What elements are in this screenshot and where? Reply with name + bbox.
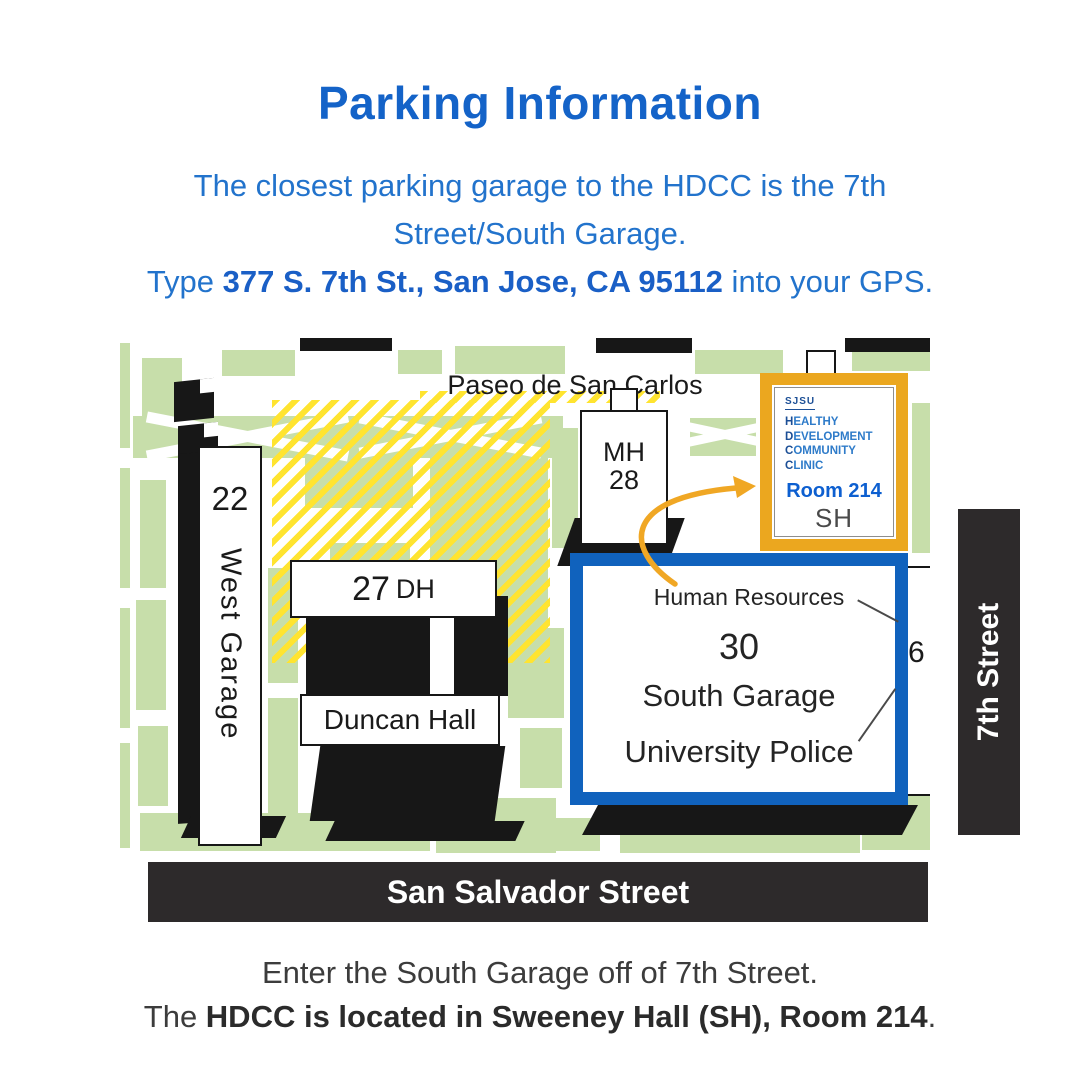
street-banner-san-salvador: San Salvador Street — [148, 862, 928, 922]
footer-line-2: The HDCC is located in Sweeney Hall (SH)… — [0, 995, 1080, 1039]
parking-infographic: Parking Information The closest parking … — [0, 0, 1080, 1080]
south-garage-shadow — [582, 805, 918, 835]
footer-text: Enter the South Garage off of 7th Street… — [0, 951, 1080, 1039]
intro-line-3: Type 377 S. 7th St., San Jose, CA 95112 … — [0, 258, 1080, 306]
building-duncan-hall: Duncan Hall — [300, 694, 500, 746]
dh-code: DH — [396, 574, 435, 605]
sjsu-logo: SJSU — [785, 396, 815, 410]
west-garage-number: 22 — [200, 480, 260, 518]
gps-address: 377 S. 7th St., San Jose, CA 95112 — [223, 264, 723, 299]
building-west-garage: 22 West Garage — [198, 446, 262, 846]
label-south-garage: South Garage — [583, 678, 895, 714]
footer-line-1: Enter the South Garage off of 7th Street… — [0, 951, 1080, 995]
street-banner-san-salvador-label: San Salvador Street — [387, 874, 689, 911]
page-title: Parking Information — [0, 76, 1080, 130]
building-fragment — [845, 338, 930, 352]
hdcc-line: HEALTHY — [785, 415, 893, 430]
label-university-police: University Police — [583, 734, 895, 770]
building-27-dh: 27 DH — [290, 560, 497, 618]
intro-line-1: The closest parking garage to the HDCC i… — [0, 162, 1080, 210]
hdcc-highlight: SJSU HEALTHY DEVELOPMENT COMMUNITY CLINI… — [760, 373, 908, 551]
duncan-shadow — [325, 821, 524, 841]
hdcc-location: HDCC is located in Sweeney Hall (SH), Ro… — [206, 999, 928, 1034]
street-banner-7th-label: 7th Street — [972, 603, 1006, 741]
hdcc-line: CLINIC — [785, 459, 893, 474]
sweeney-hall-outline: SJSU HEALTHY DEVELOPMENT COMMUNITY CLINI… — [774, 387, 894, 537]
green-patch — [120, 468, 130, 588]
dh-number: 27 — [352, 570, 390, 609]
green-patch — [520, 728, 562, 788]
street-label-paseo: Paseo de San Carlos — [420, 370, 730, 401]
green-patch — [140, 480, 166, 588]
mh-tower — [610, 388, 638, 412]
building-fragment — [596, 338, 692, 353]
duncan-building-mass — [310, 746, 506, 821]
green-patch — [136, 600, 166, 710]
hdcc-line: COMMUNITY — [785, 444, 893, 459]
south-garage-highlight: Human Resources 30 South Garage Universi… — [570, 553, 908, 805]
mh-number: 28 — [582, 466, 666, 494]
building-block — [174, 378, 214, 422]
green-patch — [120, 608, 130, 728]
west-garage-name: West Garage — [214, 548, 247, 740]
building-fragment — [300, 338, 392, 351]
mh-code: MH — [582, 438, 666, 466]
label-30: 30 — [583, 626, 895, 668]
intro-line-2: Street/South Garage. — [0, 210, 1080, 258]
green-patch — [268, 698, 298, 813]
green-patch — [222, 350, 295, 376]
campus-map: Paseo de San Carlos 22 West Garage 27 DH… — [120, 338, 930, 858]
building-mh-28: MH 28 — [580, 410, 668, 545]
green-patch — [138, 726, 168, 806]
green-patch — [912, 403, 930, 553]
green-patch — [120, 343, 130, 448]
hdcc-room: Room 214 — [775, 480, 893, 503]
intro-text: The closest parking garage to the HDCC i… — [0, 162, 1080, 306]
street-banner-7th: 7th Street — [958, 509, 1020, 835]
hdcc-line: DEVELOPMENT — [785, 430, 893, 445]
green-patch — [120, 743, 130, 848]
label-human-resources: Human Resources — [613, 584, 885, 611]
hdcc-hall-code: SH — [775, 503, 893, 534]
